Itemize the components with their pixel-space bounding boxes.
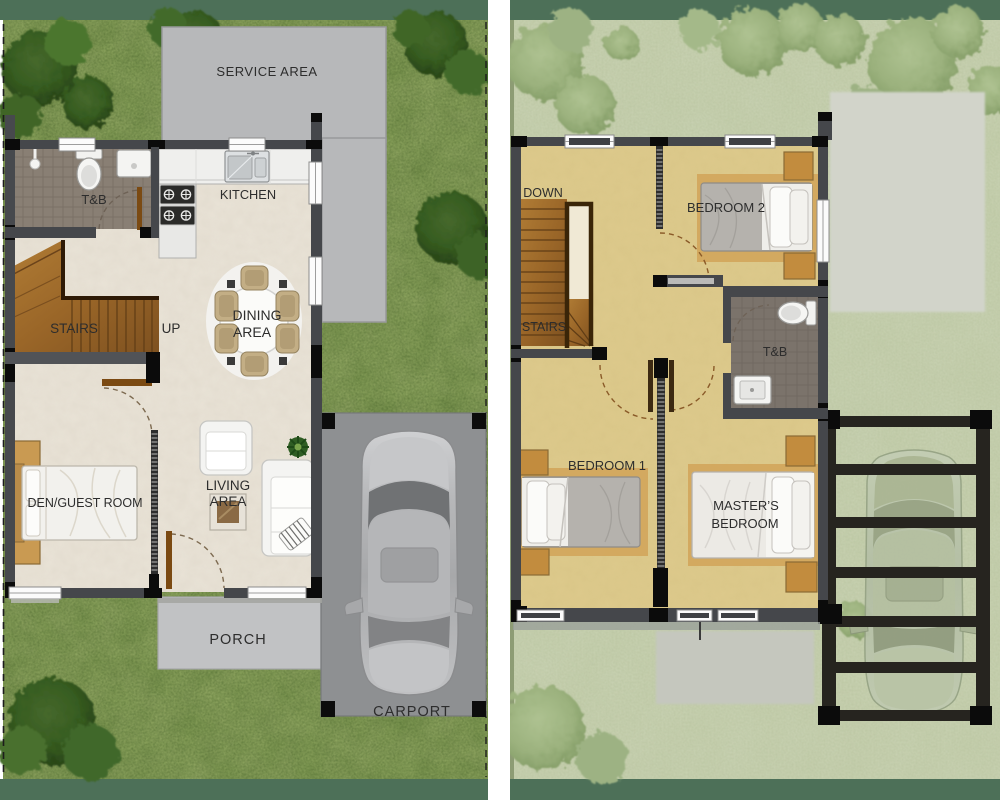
svg-text:STAIRS: STAIRS [50,321,98,336]
svg-text:DINING: DINING [233,307,282,323]
svg-text:BEDROOM: BEDROOM [711,516,778,531]
svg-text:UP: UP [162,321,181,336]
svg-text:CARPORT: CARPORT [373,704,451,720]
svg-text:DEN/GUEST ROOM: DEN/GUEST ROOM [27,496,142,510]
svg-text:AREA: AREA [210,494,247,509]
svg-text:LIVING: LIVING [206,478,250,493]
svg-text:DOWN: DOWN [523,186,563,200]
svg-text:BEDROOM 2: BEDROOM 2 [687,200,765,215]
svg-text:AREA: AREA [233,324,272,340]
svg-text:T&B: T&B [763,345,787,359]
svg-text:SERVICE AREA: SERVICE AREA [216,64,317,79]
svg-text:BEDROOM 1: BEDROOM 1 [568,458,646,473]
svg-text:PORCH: PORCH [209,632,266,648]
svg-text:MASTER’S: MASTER’S [713,498,779,513]
svg-text:T&B: T&B [81,192,106,207]
svg-text:STAIRS: STAIRS [522,320,566,334]
svg-text:KITCHEN: KITCHEN [220,187,276,202]
